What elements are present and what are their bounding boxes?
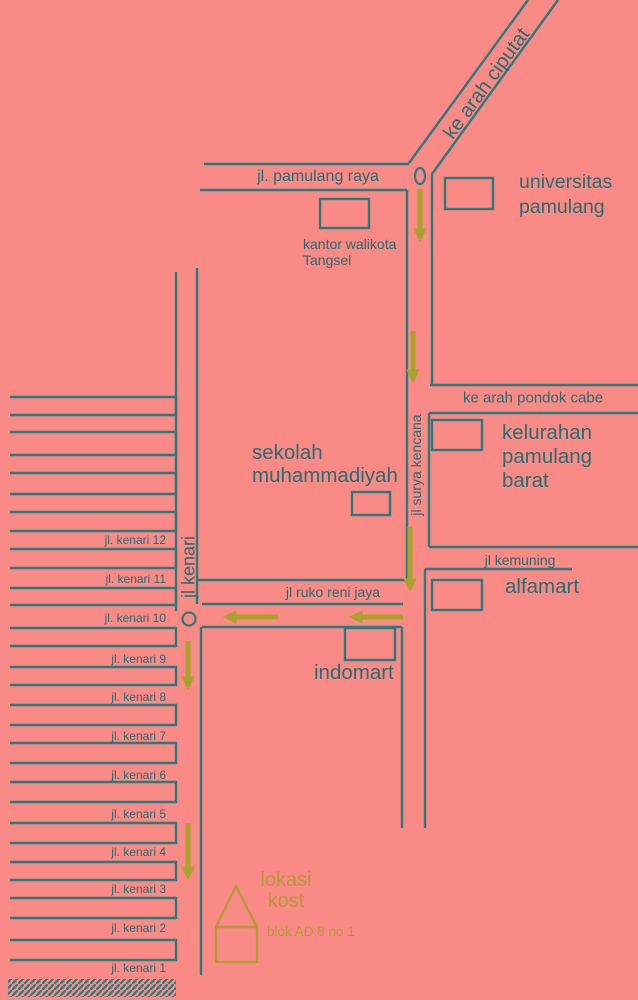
- street-label-kenari-8: jl. kenari 8: [0, 690, 166, 704]
- street-stub-kenari-6: [10, 782, 176, 802]
- street-label-kenari-6: jl. kenari 6: [0, 768, 166, 782]
- building-sekolah: [352, 492, 390, 515]
- street-stub-kenari-10: [10, 628, 176, 646]
- place-label-indomart: indomart: [314, 661, 394, 685]
- building-kantor-walikota: [320, 199, 369, 228]
- street-stub: [10, 397, 176, 415]
- location-map: ke arah ciputat jl. pamulang raya jl sur…: [0, 0, 638, 1000]
- road-label-surya-kencana: jl surya kencana: [408, 414, 424, 515]
- road-ciputat-left: [409, 0, 528, 163]
- street-label-kenari-4: jl. kenari 4: [0, 845, 166, 859]
- street-stub: [10, 512, 176, 531]
- junction-circle-kenari: [183, 613, 196, 626]
- street-stub-kenari-3: [10, 898, 176, 918]
- street-stub: [10, 473, 176, 494]
- road-label-pamulang-raya: jl. pamulang raya: [257, 168, 379, 186]
- road-label-kenari: jl kenari: [179, 536, 200, 598]
- street-stub-kenari-9: [10, 667, 176, 685]
- street-label-kenari-5: jl. kenari 5: [0, 807, 166, 821]
- street-stub-kenari-5: [10, 823, 176, 843]
- building-kelurahan: [432, 420, 482, 450]
- road-label-kemuning: jl kemuning: [485, 552, 556, 568]
- place-label-sekolah: sekolah muhammadiyah: [252, 441, 398, 487]
- road-label-pondok-cabe: ke arah pondok cabe: [463, 389, 603, 406]
- street-hatched-kenari-1: [8, 979, 176, 997]
- place-label-kantor-walikota: kantor walikota Tangsel: [303, 236, 396, 268]
- destination-detail: blok AD 8 no 1: [267, 924, 355, 940]
- building-universitas: [445, 178, 493, 209]
- road-label-ruko-reni-jaya: jl ruko reni jaya: [286, 584, 380, 600]
- street-label-kenari-3: jl. kenari 3: [0, 882, 166, 896]
- junction-circle-pamulang: [415, 168, 425, 184]
- street-label-kenari-10: jl. kenari 10: [0, 611, 166, 625]
- street-stub-kenari-11: [10, 588, 176, 605]
- street-label-kenari-11: jl. kenari 11: [0, 572, 166, 586]
- place-label-universitas: universitas pamulang: [519, 170, 612, 220]
- destination-label: lokasi kost: [250, 870, 322, 912]
- building-indomart: [345, 628, 395, 660]
- street-label-kenari-9: jl. kenari 9: [0, 652, 166, 666]
- street-label-kenari-2: jl. kenari 2: [0, 921, 166, 935]
- street-label-kenari-12: jl. kenari 12: [0, 533, 166, 547]
- street-stub-kenari-7: [10, 743, 176, 763]
- route-arrows: [188, 189, 420, 876]
- street-stub: [10, 432, 176, 455]
- place-label-alfamart: alfamart: [505, 575, 579, 599]
- street-label-kenari-7: jl. kenari 7: [0, 729, 166, 743]
- street-label-kenari-1: jl. kenari 1: [0, 961, 166, 975]
- building-alfamart: [432, 580, 482, 610]
- street-stub-kenari-8: [10, 705, 176, 725]
- house-body: [216, 927, 257, 962]
- place-label-kelurahan: kelurahan pamulang barat: [502, 421, 638, 493]
- street-stub-kenari-2: [10, 940, 176, 960]
- street-stub-kenari-12: [10, 549, 176, 568]
- street-stub-kenari-4: [10, 862, 176, 880]
